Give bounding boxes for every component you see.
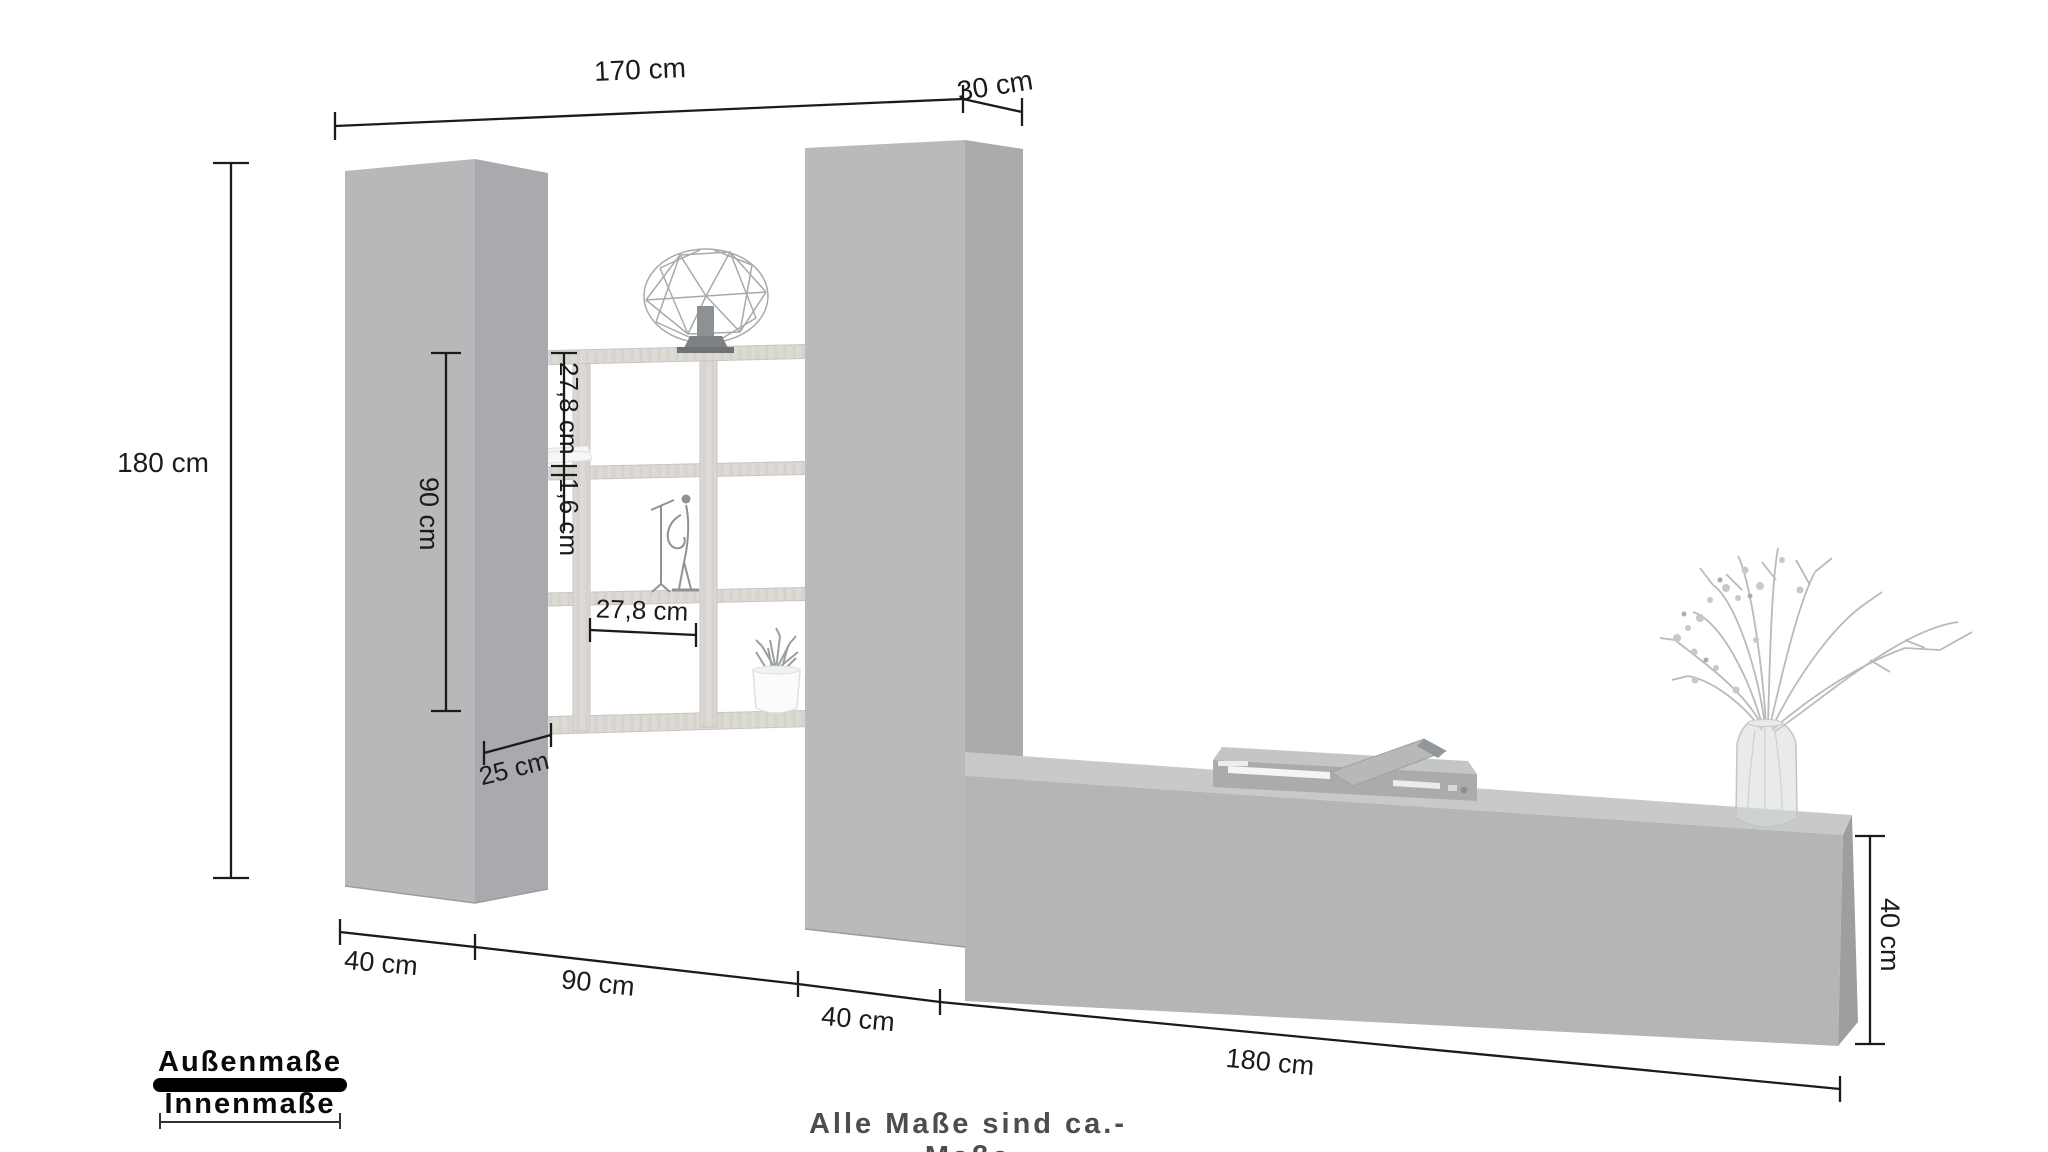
figurine-decor [651,495,699,593]
left-cabinet-front [345,159,475,903]
dim-label-cell-width: 27,8 cm [572,593,713,629]
shelf-divider-2 [700,349,717,727]
footer-note: Alle Maße sind ca.-Maße [768,1108,1168,1152]
scene-canvas [0,0,2048,1152]
wireframe-lamp-decor [644,249,768,353]
legend-inner-label: Innenmaße [150,1088,350,1121]
dim-label-total-height: 180 cm [103,447,223,479]
right-cabinet-front [805,140,965,947]
dim-total-height-line [213,163,249,878]
potted-plant-decor [753,628,800,713]
dim-label-shelf-height: 90 cm [413,477,444,551]
dim-label-lowboard-height: 40 cm [1874,898,1905,972]
legend-outer-label: Außenmaße [150,1046,350,1079]
dim-label-cell-height: 27,8 cm [553,362,584,455]
dim-top-width-line [335,85,963,140]
furniture-dimension-diagram: 170 cm 30 cm 180 cm 90 cm 27,8 cm 1,6 cm… [0,0,2048,1152]
vase-decor [1660,548,1972,827]
shelf-middle-board-1 [500,461,828,481]
dim-label-board-thickness: 1,6 cm [553,478,584,556]
